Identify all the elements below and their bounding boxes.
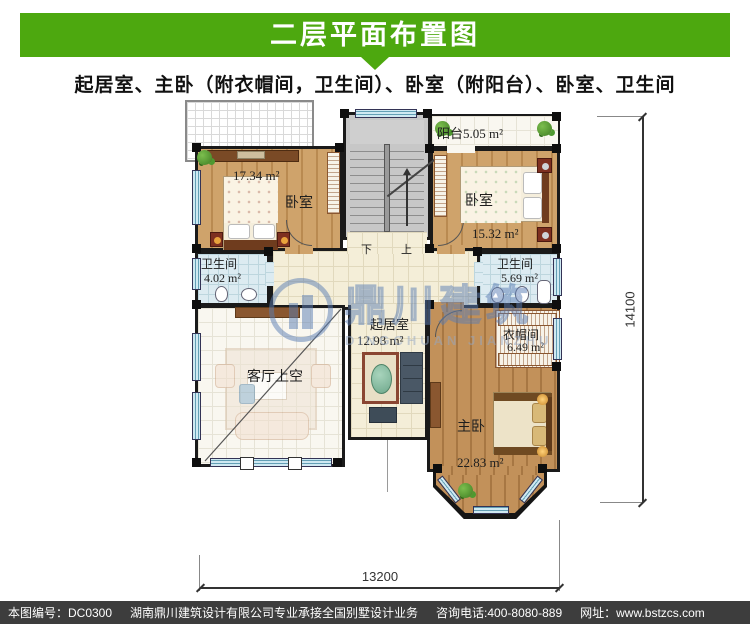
label-bedroom-right: 卧室 <box>465 190 493 210</box>
toilet-icon <box>215 286 228 302</box>
label-master: 主卧 <box>457 416 485 436</box>
wall-column <box>552 362 561 371</box>
page: 二层平面布置图 起居室、主卧（附衣帽间，卫生间）、卧室（附阳台）、卧室、卫生间 … <box>0 0 750 624</box>
cabinet-master <box>430 382 441 428</box>
nightstand <box>537 227 552 242</box>
window-cloakroom <box>553 318 562 360</box>
tv <box>237 151 265 159</box>
lamp-icon <box>537 446 548 457</box>
plant-icon <box>537 121 552 136</box>
wall-column <box>552 144 561 153</box>
pillow <box>532 426 547 446</box>
stair-down-label: 下 <box>361 241 372 257</box>
bed-headboard <box>542 167 549 223</box>
void-diagonal-line <box>195 305 345 467</box>
area-cloakroom: 6.49 m² <box>507 340 544 355</box>
void-bottom-pillar-1 <box>240 457 254 470</box>
lamp-icon <box>281 237 288 244</box>
door-balcony <box>447 145 475 153</box>
header-bar: 二层平面布置图 <box>20 13 730 57</box>
bathtub-icon <box>537 280 551 304</box>
sink-icon <box>515 286 529 303</box>
window-stair-top <box>355 109 417 118</box>
wall-column <box>425 300 434 309</box>
pillow <box>523 172 542 194</box>
bed-headboard <box>546 397 552 451</box>
door-bath-right <box>474 262 483 286</box>
table-living <box>371 364 392 394</box>
plant-icon <box>197 150 212 165</box>
label-living: 起居室 <box>370 314 409 333</box>
extension-line <box>559 520 560 591</box>
wall-column <box>538 464 547 473</box>
nightstand <box>277 232 290 247</box>
window-void-bottom <box>210 458 332 467</box>
stair-up-label: 上 <box>401 241 412 257</box>
wall-column <box>335 143 344 152</box>
wall-column <box>192 300 201 309</box>
wall-column <box>340 109 349 118</box>
sink-icon <box>241 288 257 301</box>
lamp-icon <box>542 163 549 170</box>
window-bedroom-left <box>192 170 201 225</box>
window-void-left-2 <box>192 392 201 440</box>
window-bath-right <box>553 258 562 296</box>
toilet-icon <box>491 287 504 303</box>
opening-hall-living <box>351 303 425 313</box>
wardrobe-bedroom-right <box>434 155 447 217</box>
wall-column <box>425 244 434 253</box>
dimension-width: 13200 <box>350 569 410 584</box>
nightstand <box>210 232 223 247</box>
hallway <box>270 248 480 310</box>
area-living: 12.93 m² <box>357 333 404 349</box>
sofa-cushion-line <box>403 378 422 379</box>
window-void-left-1 <box>192 333 201 381</box>
wall-column <box>192 244 201 253</box>
wall-column <box>433 464 442 473</box>
lamp-icon <box>537 394 548 405</box>
pillow <box>253 224 275 239</box>
area-bedroom-right: 15.32 m² <box>472 226 519 242</box>
wall-column <box>552 112 561 121</box>
area-master: 22.83 m² <box>457 455 504 471</box>
label-balcony: 阳台5.05 m² <box>437 123 503 142</box>
door-bath-left <box>265 262 274 286</box>
footer-bar: 本图编号：DC0300 湖南鼎川建筑设计有限公司专业承接全国别墅设计业务 咨询电… <box>0 601 750 624</box>
wall-column <box>333 458 342 467</box>
wall-column <box>423 109 432 118</box>
pillow <box>532 403 547 423</box>
lamp-icon <box>214 237 221 244</box>
wall-column <box>552 244 561 253</box>
area-bath-right: 5.69 m² <box>501 271 538 286</box>
area-bath-left: 4.02 m² <box>204 271 241 286</box>
sofa-cushion-line <box>403 365 422 366</box>
page-subtitle: 起居室、主卧（附衣帽间，卫生间）、卧室（附阳台）、卧室、卫生间 <box>0 70 750 97</box>
sofa-cushion-line <box>403 391 422 392</box>
dimension-line-bottom <box>200 587 560 589</box>
dimension-line-right <box>642 116 644 503</box>
wall-column <box>264 247 273 256</box>
wall-column <box>473 247 482 256</box>
label-bath-left: 卫生间 <box>201 255 237 272</box>
label-bath-right: 卫生间 <box>497 255 533 272</box>
extension-line <box>600 502 643 503</box>
floor-plan: 下 上 <box>185 100 665 600</box>
extension-line <box>597 116 643 117</box>
pillow <box>228 224 250 239</box>
header-pointer <box>361 57 389 70</box>
label-void: 客厅上空 <box>247 366 303 386</box>
wardrobe-bedroom-left <box>327 152 340 214</box>
rug-living <box>362 352 399 404</box>
door-bedroom-right <box>437 245 465 254</box>
stair-handrail <box>384 144 390 232</box>
nightstand <box>537 158 552 173</box>
stair-arrow-line <box>406 174 408 226</box>
terrace-divider <box>387 438 388 492</box>
window-bay-bottom <box>473 506 509 514</box>
dimension-height: 14100 <box>623 280 638 340</box>
dimension-tick <box>555 583 564 592</box>
stair-arrow-head <box>403 168 411 175</box>
void-bottom-pillar-2 <box>288 457 302 470</box>
hallway-stair-stub <box>347 232 427 254</box>
wall-column <box>552 300 561 309</box>
wall-column <box>192 458 201 467</box>
label-bedroom-left: 卧室 <box>285 192 313 212</box>
bench-living <box>369 407 397 423</box>
lamp-icon <box>542 232 549 239</box>
area-bedroom-left: 17.34 m² <box>233 168 280 184</box>
sofa-living <box>400 352 423 404</box>
footer-website: 网址：www.bstzcs.com <box>580 604 705 621</box>
stair-landing <box>350 120 424 144</box>
wardrobe-cloakroom-top <box>498 313 557 326</box>
footer-phone: 咨询电话:400-8080-889 <box>436 604 562 621</box>
footer-drawing-number: 本图编号：DC0300 <box>8 604 112 621</box>
plant-icon <box>458 483 473 498</box>
wall-column <box>425 144 434 153</box>
bed-bedroom-left <box>223 176 277 250</box>
page-title: 二层平面布置图 <box>20 13 730 57</box>
window-bath-left <box>192 258 201 290</box>
dimension-tick <box>638 498 647 507</box>
pillow <box>523 197 542 219</box>
footer-company: 湖南鼎川建筑设计有限公司专业承接全国别墅设计业务 <box>130 604 418 621</box>
